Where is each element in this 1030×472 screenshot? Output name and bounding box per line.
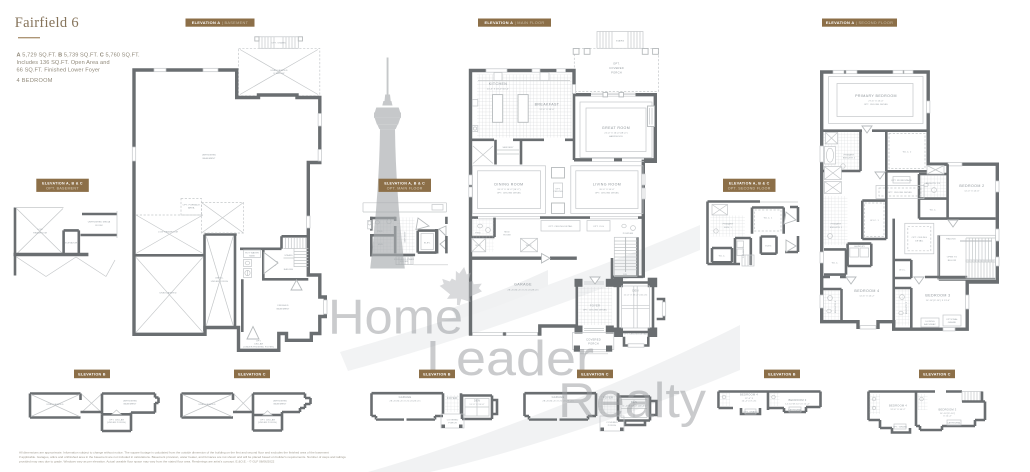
svg-text:11'-0" X 15'-0": 11'-0" X 15'-0" xyxy=(469,404,484,406)
svg-text:ENSUITE 2: ENSUITE 2 xyxy=(843,158,856,160)
svg-text:OPT. WORKSPACE: OPT. WORKSPACE xyxy=(891,179,912,182)
svg-text:BASEMENT: BASEMENT xyxy=(203,157,216,160)
svg-text:X 12'-4": X 12'-4" xyxy=(943,415,952,417)
svg-text:ELEVATOR: ELEVATOR xyxy=(65,242,77,245)
svg-text:BEDROOM 4: BEDROOM 4 xyxy=(854,289,879,293)
svg-text:OPT. GRAND: OPT. GRAND xyxy=(893,426,908,429)
svg-text:OPT. BASEMENT: OPT. BASEMENT xyxy=(46,187,79,191)
svg-text:LIVING ROOM: LIVING ROOM xyxy=(593,183,621,187)
svg-text:BEDROOM 4: BEDROOM 4 xyxy=(889,404,907,408)
svg-text:FOYER: FOYER xyxy=(447,396,457,400)
svg-text:CATHEDRAL: CATHEDRAL xyxy=(788,409,803,412)
svg-text:PORCH: PORCH xyxy=(448,422,457,424)
svg-text:AREA: AREA xyxy=(188,207,195,210)
svg-text:ELEVATION A | BASEMENT: ELEVATION A | BASEMENT xyxy=(192,20,249,25)
svg-text:BEDROOM 2: BEDROOM 2 xyxy=(959,184,984,188)
svg-text:11'-0" X 15'-0" (16'-4"): 11'-0" X 15'-0" (16'-4") xyxy=(624,295,648,297)
svg-text:DEN: DEN xyxy=(632,289,638,293)
svg-text:ENSUITE 4: ENSUITE 4 xyxy=(835,300,837,313)
svg-text:ENSUITE 2/3: ENSUITE 2/3 xyxy=(926,183,941,185)
svg-text:ELEVATION C: ELEVATION C xyxy=(238,373,266,377)
svg-text:UNEXCAVATED: UNEXCAVATED xyxy=(270,69,287,72)
svg-text:8' BELOW: 8' BELOW xyxy=(274,73,286,75)
svg-text:ELEV.: ELEV. xyxy=(424,243,431,245)
svg-text:OPT. CEILING DETAIL: OPT. CEILING DETAIL xyxy=(497,191,522,194)
svg-text:14'-3" X 18'-0"/20'-0": 14'-3" X 18'-0"/20'-0" xyxy=(487,89,509,91)
svg-text:ELEVATION C: ELEVATION C xyxy=(923,373,951,377)
svg-text:HOT WATER: HOT WATER xyxy=(245,251,259,254)
svg-text:(UNDER FINISHED FOYER): (UNDER FINISHED FOYER) xyxy=(243,347,274,349)
svg-text:OPT. CEILING DETAIL: OPT. CEILING DETAIL xyxy=(888,191,913,194)
svg-text:KITCHEN: KITCHEN xyxy=(489,82,508,86)
svg-text:ELEVATION A | SECOND FLOOR: ELEVATION A | SECOND FLOOR xyxy=(826,20,894,25)
svg-text:W.I.C. 1: W.I.C. 1 xyxy=(870,220,879,222)
svg-text:W.I.C.: W.I.C. xyxy=(526,245,533,247)
svg-text:GARAGE: GARAGE xyxy=(514,283,532,287)
svg-text:28'-4"(30'-4") X 21'-0"(28'-0": 28'-4"(30'-4") X 21'-0"(28'-0") xyxy=(508,290,539,292)
svg-text:UNDER PORCH: UNDER PORCH xyxy=(211,281,229,283)
svg-text:28'-4"(30'-4") X 21'-0"(23'-0": 28'-4"(30'-4") X 21'-0"(23'-0") xyxy=(390,401,421,403)
svg-text:W.I.C.: W.I.C. xyxy=(719,256,726,258)
svg-text:ARCHWAY: ARCHWAY xyxy=(924,323,936,326)
svg-text:UNFINISHED: UNFINISHED xyxy=(123,401,138,403)
svg-text:UNEXC.: UNEXC. xyxy=(215,278,224,280)
svg-text:66 SQ.FT. Finished Lower Foyer: 66 SQ.FT. Finished Lower Foyer xyxy=(17,68,101,74)
svg-text:OPT. CEILING DETAIL: OPT. CEILING DETAIL xyxy=(864,103,889,106)
svg-text:Includes 136 SQ.FT. Open Area: Includes 136 SQ.FT. Open Area and xyxy=(17,60,110,66)
svg-text:BEDROOM 3: BEDROOM 3 xyxy=(939,408,957,412)
svg-text:UNEXCAVATED: UNEXCAVATED xyxy=(159,292,176,295)
svg-text:PRIMARY: PRIMARY xyxy=(844,154,855,157)
svg-text:OPT. GRAND: OPT. GRAND xyxy=(743,411,758,414)
svg-text:ROOM: ROOM xyxy=(95,225,102,227)
svg-text:ELEVATION A, B & C: ELEVATION A, B & C xyxy=(729,181,770,185)
svg-text:ELEVATION B: ELEVATION B xyxy=(423,373,451,377)
svg-text:22'-0" X 16'-0"(18'-0"): 22'-0" X 16'-0"(18'-0") xyxy=(604,133,627,135)
svg-text:OPT.: OPT. xyxy=(256,341,262,343)
svg-text:(UNDER PORCH): (UNDER PORCH) xyxy=(107,422,126,424)
svg-text:ELEVATION A, B & C: ELEVATION A, B & C xyxy=(42,181,83,185)
svg-text:ELEVATION C: ELEVATION C xyxy=(581,373,609,377)
svg-text:BASEMENT: BASEMENT xyxy=(274,402,287,405)
svg-text:BEDROOM 4: BEDROOM 4 xyxy=(740,393,758,397)
svg-text:W.I.C.: W.I.C. xyxy=(899,270,906,272)
svg-text:OPEN TO: OPEN TO xyxy=(947,257,958,259)
svg-text:PRIMARY: PRIMARY xyxy=(723,223,734,226)
svg-text:OPT. STAIRS: OPT. STAIRS xyxy=(271,42,286,45)
svg-text:W.I.C. 1: W.I.C. 1 xyxy=(764,218,773,220)
svg-text:All dimensions are approximate: All dimensions are approximate. Informat… xyxy=(19,451,329,455)
svg-text:OPTIONAL: OPTIONAL xyxy=(946,318,959,321)
svg-text:OPT.: OPT. xyxy=(555,189,561,191)
svg-text:STAIRS: STAIRS xyxy=(284,254,293,257)
svg-text:HARDWOOD: HARDWOOD xyxy=(609,135,623,138)
svg-text:ELEV.: ELEV. xyxy=(765,246,772,248)
svg-text:BREAKFAST: BREAKFAST xyxy=(535,103,560,107)
svg-text:FINISHED: FINISHED xyxy=(277,305,288,307)
svg-text:PORCH: PORCH xyxy=(611,71,622,75)
svg-text:20'-0" X 14'-0": 20'-0" X 14'-0" xyxy=(599,189,614,191)
svg-text:4 BEDROOM: 4 BEDROOM xyxy=(17,78,53,84)
svg-text:ELEVATION B: ELEVATION B xyxy=(78,373,106,377)
svg-text:DINING ROOM: DINING ROOM xyxy=(494,183,523,187)
svg-text:provided may vary due to grade: provided may vary due to grade. Windows … xyxy=(19,460,275,464)
svg-text:TANK: TANK xyxy=(249,254,256,257)
svg-text:BASEMENT: BASEMENT xyxy=(124,402,137,405)
svg-text:14'-10"(9'-10") X 13'-4": 14'-10"(9'-10") X 13'-4" xyxy=(926,300,951,302)
svg-text:W.I.C. 2: W.I.C. 2 xyxy=(903,152,912,154)
svg-text:12'-0" X 14'-6": 12'-0" X 14'-6" xyxy=(964,191,979,193)
svg-text:W.I.C.: W.I.C. xyxy=(832,263,839,265)
svg-text:COVERED: COVERED xyxy=(447,420,459,422)
svg-text:MUD: MUD xyxy=(504,232,510,234)
svg-text:OPT. CEILING: OPT. CEILING xyxy=(912,237,928,239)
svg-text:OPT. CEILING DETAIL: OPT. CEILING DETAIL xyxy=(548,225,573,228)
svg-text:OPT. CLG: OPT. CLG xyxy=(593,226,604,228)
svg-text:COVERED: COVERED xyxy=(609,66,624,70)
svg-text:if applicable. Garages, attics: if applicable. Garages, attics and unfin… xyxy=(19,455,346,459)
svg-text:ELEVATION A | MAIN FLOOR: ELEVATION A | MAIN FLOOR xyxy=(484,20,544,25)
svg-text:PRIMARY: PRIMARY xyxy=(831,223,842,226)
svg-text:ROOM: ROOM xyxy=(503,235,510,237)
svg-text:OPT. SECOND FLOOR: OPT. SECOND FLOOR xyxy=(728,187,771,191)
svg-text:LAUNDRY: LAUNDRY xyxy=(854,245,866,248)
svg-text:27'-6" X 13'-0": 27'-6" X 13'-0" xyxy=(868,101,883,103)
svg-text:GREAT ROOM: GREAT ROOM xyxy=(602,126,630,130)
svg-text:SERVERY: SERVERY xyxy=(502,147,514,149)
svg-text:ELEVATION A, B & C: ELEVATION A, B & C xyxy=(384,181,425,185)
svg-text:W.I.C.: W.I.C. xyxy=(930,210,937,212)
svg-text:BASEMENT: BASEMENT xyxy=(277,307,290,310)
svg-text:POWDER: POWDER xyxy=(623,233,634,235)
svg-text:UNFINISHED MEDIA: UNFINISHED MEDIA xyxy=(88,221,111,224)
svg-text:A 5,729 SQ.FT. B 5,739 SQ.FT.: A 5,729 SQ.FT. B 5,739 SQ.FT. C 5,760 SQ… xyxy=(17,53,141,59)
svg-text:SERVERY: SERVERY xyxy=(405,231,407,243)
svg-text:ENS. 1: ENS. 1 xyxy=(724,227,732,229)
svg-text:Realty: Realty xyxy=(558,374,707,428)
svg-text:RAILING: RAILING xyxy=(284,268,294,271)
svg-text:LOW: LOW xyxy=(37,229,43,231)
svg-text:CATHEDRAL: CATHEDRAL xyxy=(947,422,962,425)
svg-text:LOW HEADROOM: LOW HEADROOM xyxy=(158,231,178,234)
svg-text:BELOW: BELOW xyxy=(948,260,957,262)
svg-text:UNFINISHED: UNFINISHED xyxy=(202,155,217,157)
svg-text:GARAGE: GARAGE xyxy=(399,395,412,399)
svg-text:12'-6" X 16'-2": 12'-6" X 16'-2" xyxy=(890,409,905,411)
svg-text:ENSUITE 3: ENSUITE 3 xyxy=(906,301,908,314)
svg-text:UNEXCAVATED: UNEXCAVATED xyxy=(198,403,215,406)
svg-text:ELEVATION B: ELEVATION B xyxy=(768,373,796,377)
svg-text:OPT. FURNACE: OPT. FURNACE xyxy=(183,203,201,206)
svg-text:OPT. MAIN FLOOR: OPT. MAIN FLOOR xyxy=(387,187,423,191)
svg-text:BEDROOM 3: BEDROOM 3 xyxy=(789,398,807,402)
svg-text:UNFINISHED: UNFINISHED xyxy=(273,401,288,403)
svg-text:STAIRS: STAIRS xyxy=(616,40,625,43)
svg-text:14'-10"(9'-10") X 12'-4": 14'-10"(9'-10") X 12'-4" xyxy=(785,403,810,405)
svg-text:12'-6" X 18'-0": 12'-6" X 18'-0" xyxy=(539,109,554,111)
svg-text:BEDROOM 3: BEDROOM 3 xyxy=(925,294,950,298)
svg-text:(UNDER PORCH): (UNDER PORCH) xyxy=(258,422,277,424)
svg-text:20'-3" X 14'-2"(16'-2"): 20'-3" X 14'-2"(16'-2") xyxy=(497,189,520,191)
svg-text:OPT. CEILING DETAIL: OPT. CEILING DETAIL xyxy=(595,191,620,194)
svg-text:PRIMARY BEDROOM: PRIMARY BEDROOM xyxy=(855,94,897,98)
svg-text:DETAIL: DETAIL xyxy=(915,239,924,242)
svg-text:OPT. CEILING DETAIL: OPT. CEILING DETAIL xyxy=(583,309,608,312)
svg-text:OPT.: OPT. xyxy=(613,62,620,66)
svg-text:RAILING: RAILING xyxy=(946,238,956,241)
svg-text:Fairfield 6: Fairfield 6 xyxy=(15,15,79,31)
svg-text:CELLAR: CELLAR xyxy=(254,343,263,346)
svg-text:UNEXCAVATED: UNEXCAVATED xyxy=(46,403,63,406)
svg-text:DN: DN xyxy=(623,274,627,276)
svg-text:OPT. CEILING DETAIL: OPT. CEILING DETAIL xyxy=(623,333,648,336)
svg-text:FOYER: FOYER xyxy=(590,304,600,308)
svg-text:HEADROOM: HEADROOM xyxy=(33,231,47,234)
svg-text:12'-6" X 14'-2": 12'-6" X 14'-2" xyxy=(859,296,874,298)
svg-text:W.I.C.: W.I.C. xyxy=(475,245,482,247)
svg-text:14'-4" (17'-4"): 14'-4" (17'-4") xyxy=(742,400,757,402)
svg-text:ENSUITE 1: ENSUITE 1 xyxy=(830,227,843,229)
svg-text:GRAND: GRAND xyxy=(948,321,957,324)
svg-text:SLIDING: SLIDING xyxy=(925,321,935,323)
svg-text:DEN: DEN xyxy=(474,399,480,403)
svg-text:CEILING: CEILING xyxy=(553,191,563,193)
